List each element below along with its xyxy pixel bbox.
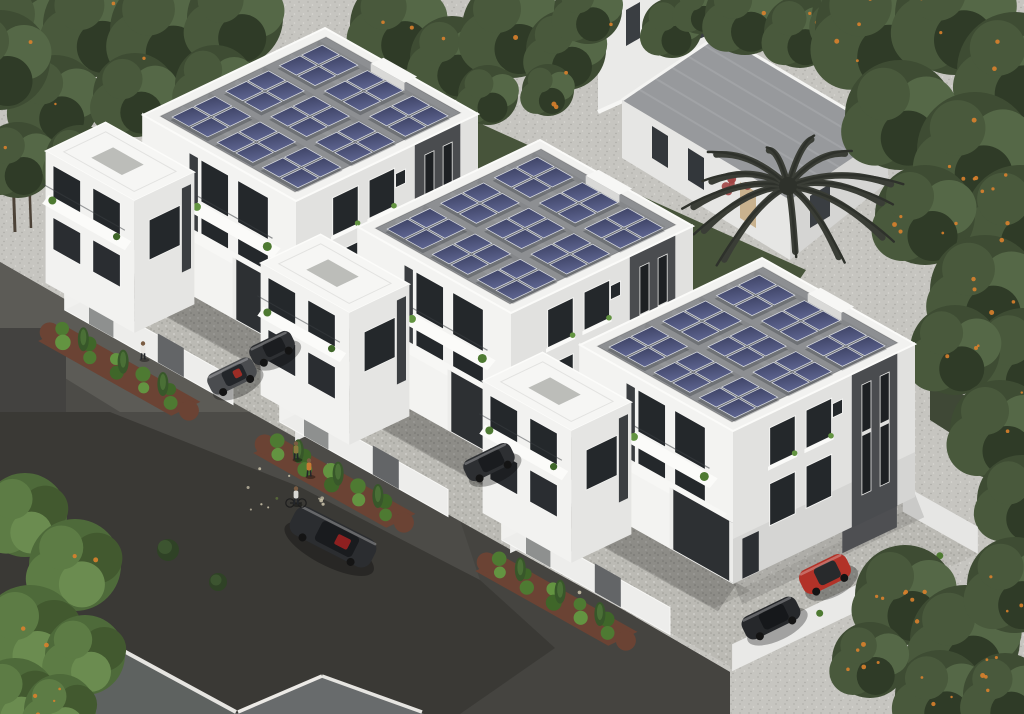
scene-canvas bbox=[0, 0, 1024, 714]
aerial-architectural-render: Aerial 3D architectural rendering of a r… bbox=[0, 0, 1024, 714]
